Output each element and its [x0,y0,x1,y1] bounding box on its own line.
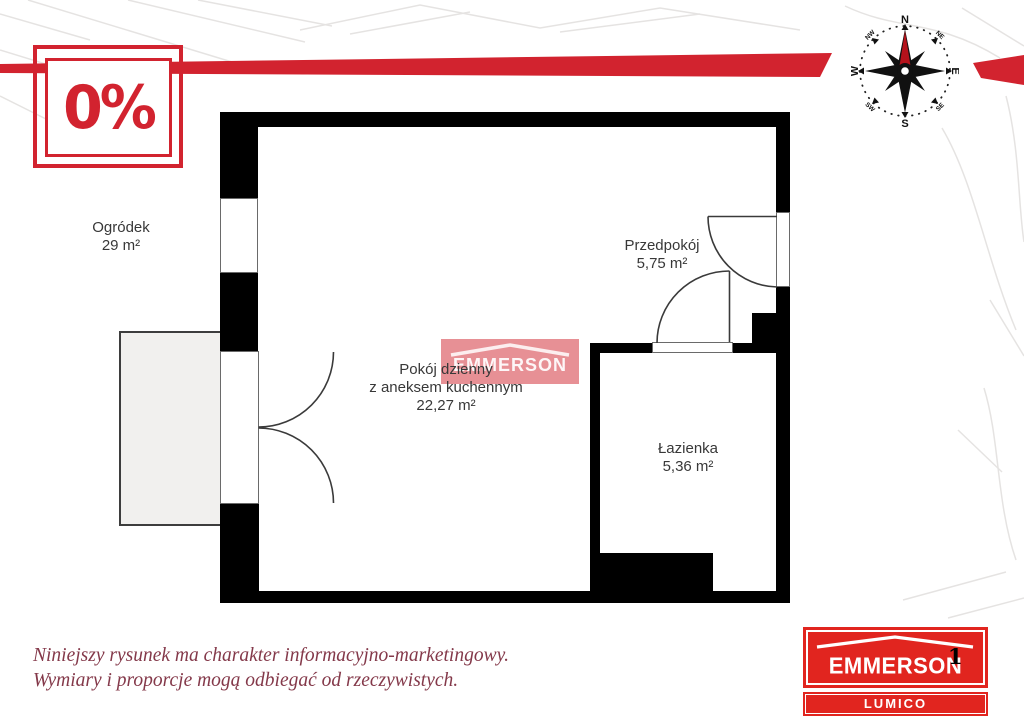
wall-left-middle [220,273,258,351]
bathroom-label: Łazienka 5,36 m² [618,440,758,476]
floor-plan-page: 0% N S E W NW [0,0,1024,724]
logo-bottom-block: LUMICO [803,692,988,716]
wall-hall-jog [752,313,778,345]
compass-label-w: W [851,65,861,76]
disclaimer-line1: Niniejszy rysunek ma charakter informacy… [33,643,509,668]
garden-label: Ogródek 29 m² [51,219,191,255]
bathroom-area: 5,36 m² [618,458,758,476]
living-room-name-line2: z aneksem kuchennym [346,379,546,397]
hallway-label: Przedpokój 5,75 m² [592,237,732,273]
zero-percent-badge: 0% [45,58,172,157]
page-number: 1 [948,644,963,669]
disclaimer-line2: Wymiary i proporcje mogą odbiegać od rze… [33,668,509,693]
garden-area: 29 m² [51,237,191,255]
wall-left-upper [220,112,258,198]
wall-bathroom-bottom-block [590,553,713,592]
zero-percent-label: 0% [63,73,154,142]
terrace-door-opening [220,351,259,504]
wall-bottom [220,591,790,603]
garden-name: Ogródek [51,219,191,237]
disclaimer-text: Niniejszy rysunek ma charakter informacy… [33,643,509,693]
hallway-area: 5,75 m² [592,255,732,273]
wall-top [220,112,790,127]
compass-label-s: S [901,118,908,128]
bathroom-name: Łazienka [618,440,758,458]
compass-hub-center [901,67,909,75]
entrance-door-opening [776,212,790,287]
wall-right-lower [776,287,790,603]
wall-right-upper [776,112,790,212]
wall-left-lower [220,504,259,603]
bathroom-door-opening [652,342,733,353]
terrace-area [119,331,222,526]
compass-label-e: E [949,67,959,74]
logo-sub-text: LUMICO [803,696,988,711]
compass-rose-icon: N S E W NW NE SW SE [851,14,959,128]
hallway-name: Przedpokój [592,237,732,255]
living-room-name-line1: Pokój dzienny [346,361,546,379]
living-room-label: Pokój dzienny z aneksem kuchennym 22,27 … [346,361,546,415]
emmerson-lumico-logo: EMMERSON LUMICO [803,627,988,716]
window-left [220,198,258,273]
compass-label-n: N [901,14,909,26]
living-room-area: 22,27 m² [346,397,546,415]
